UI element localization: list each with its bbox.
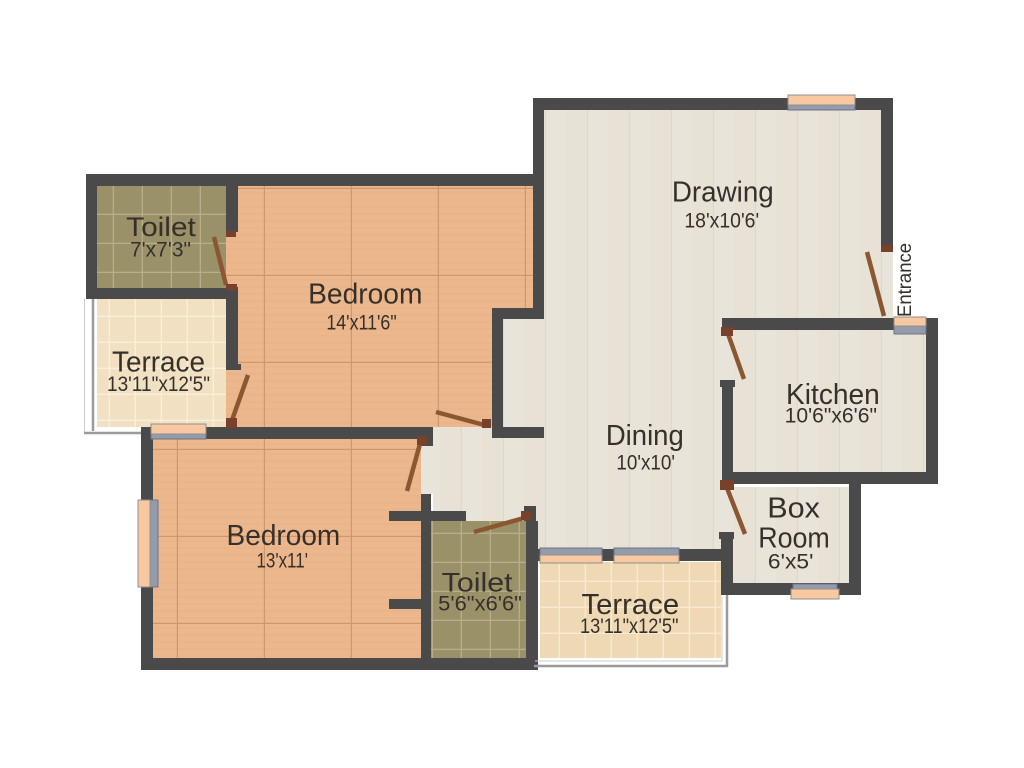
svg-text:13'11"x12'5": 13'11"x12'5" [580,615,678,638]
svg-text:10'x10': 10'x10' [616,452,675,475]
svg-text:Drawing: Drawing [672,176,774,208]
svg-text:Toilet: Toilet [126,212,196,242]
svg-text:13'11"x12'5": 13'11"x12'5" [107,373,210,396]
svg-text:6'x5': 6'x5' [768,551,814,574]
svg-text:5'6"x6'6": 5'6"x6'6" [438,593,522,616]
svg-text:13'x11': 13'x11' [256,549,308,572]
svg-text:Bedroom: Bedroom [227,520,341,552]
svg-text:18'x10'6': 18'x10'6' [684,209,759,232]
svg-text:10'6"x6'6": 10'6"x6'6" [785,405,877,428]
svg-text:7'x7'3": 7'x7'3" [130,238,191,261]
svg-text:Bedroom: Bedroom [308,278,422,310]
svg-text:Dining: Dining [606,420,684,452]
svg-text:Box: Box [767,493,820,525]
svg-text:14'x11'6": 14'x11'6" [326,312,396,335]
svg-text:Entrance: Entrance [895,243,916,317]
